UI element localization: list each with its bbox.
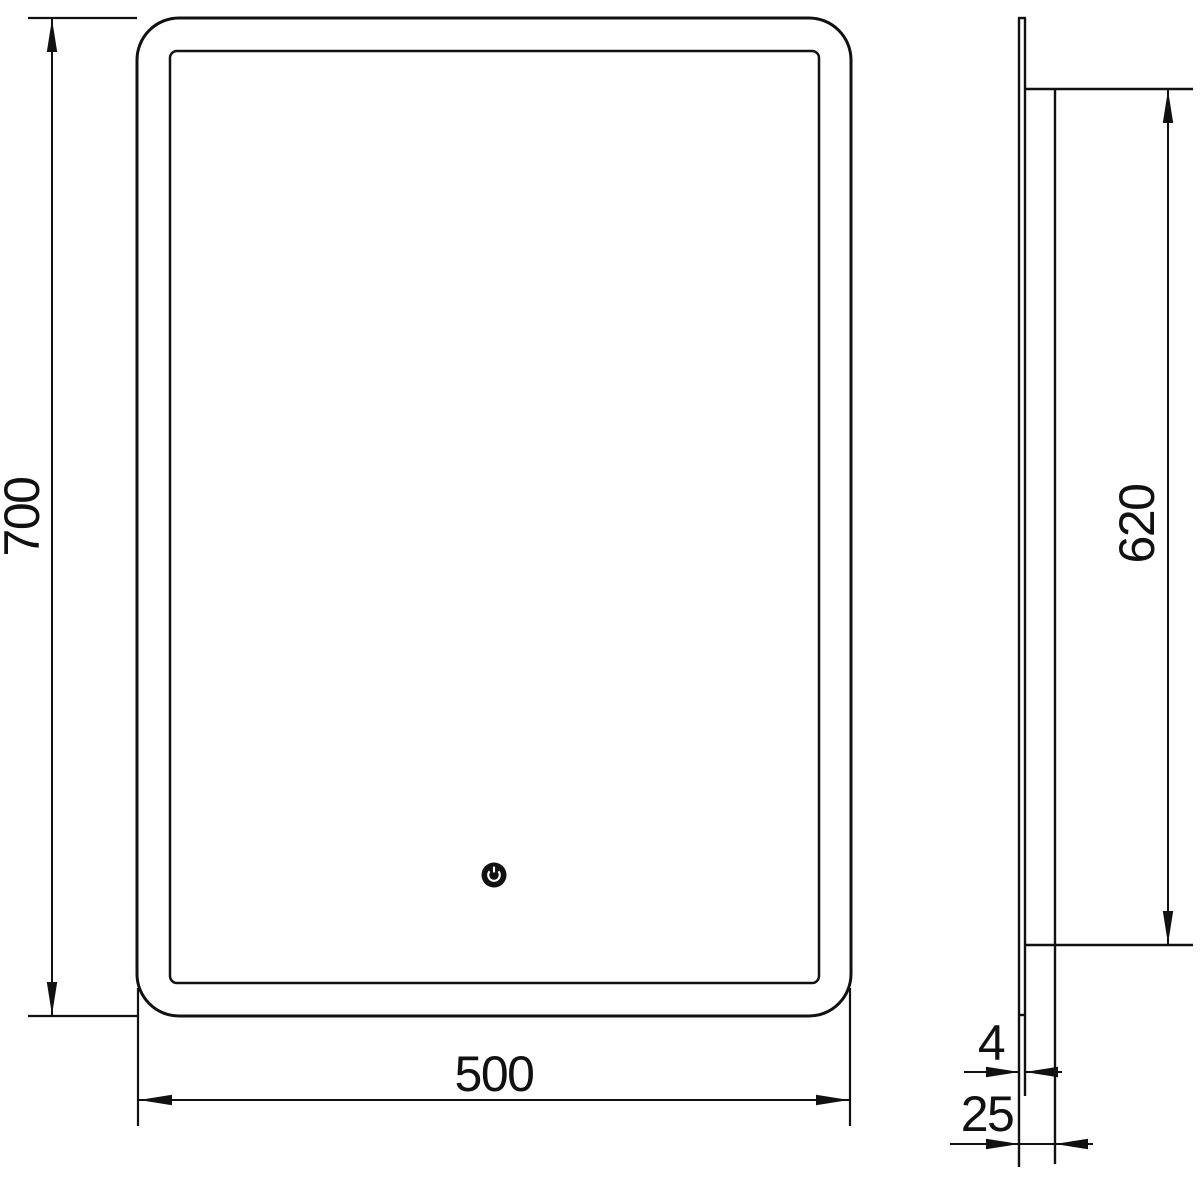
front-view: 700 500 xyxy=(0,18,851,1126)
dim-inner-height: 620 xyxy=(1109,90,1173,944)
dim-depth-label: 25 xyxy=(961,1086,1014,1142)
dim-height-arrow-up xyxy=(47,19,57,52)
dim-inner-height-arrow-up xyxy=(1163,90,1173,123)
dim-thickness-arrow-right xyxy=(1025,1067,1058,1077)
dim-height-arrow-down xyxy=(47,982,57,1015)
dim-inner-height-label: 620 xyxy=(1109,485,1165,564)
dim-depth: 25 xyxy=(950,1086,1093,1149)
dim-width-arrow-left xyxy=(139,1095,172,1105)
drawing-canvas: 700 500 620 xyxy=(0,0,1200,1180)
power-icon-background xyxy=(482,863,507,888)
mirror-technical-drawing: 700 500 620 xyxy=(0,0,1200,1180)
dim-thickness-label: 4 xyxy=(978,1015,1005,1071)
mirror-inner-frame xyxy=(170,51,819,983)
dim-height: 700 xyxy=(0,18,137,1016)
dim-width: 500 xyxy=(138,988,850,1126)
side-view: 620 4 25 xyxy=(950,18,1193,1167)
dim-width-label: 500 xyxy=(455,1046,534,1102)
dim-glass-thickness: 4 xyxy=(964,1015,1062,1077)
dim-height-label: 700 xyxy=(0,478,50,557)
dim-depth-arrow-right xyxy=(1055,1139,1088,1149)
dim-width-arrow-right xyxy=(816,1095,849,1105)
dim-inner-height-arrow-down xyxy=(1163,911,1173,944)
touch-power-icon xyxy=(482,863,507,888)
